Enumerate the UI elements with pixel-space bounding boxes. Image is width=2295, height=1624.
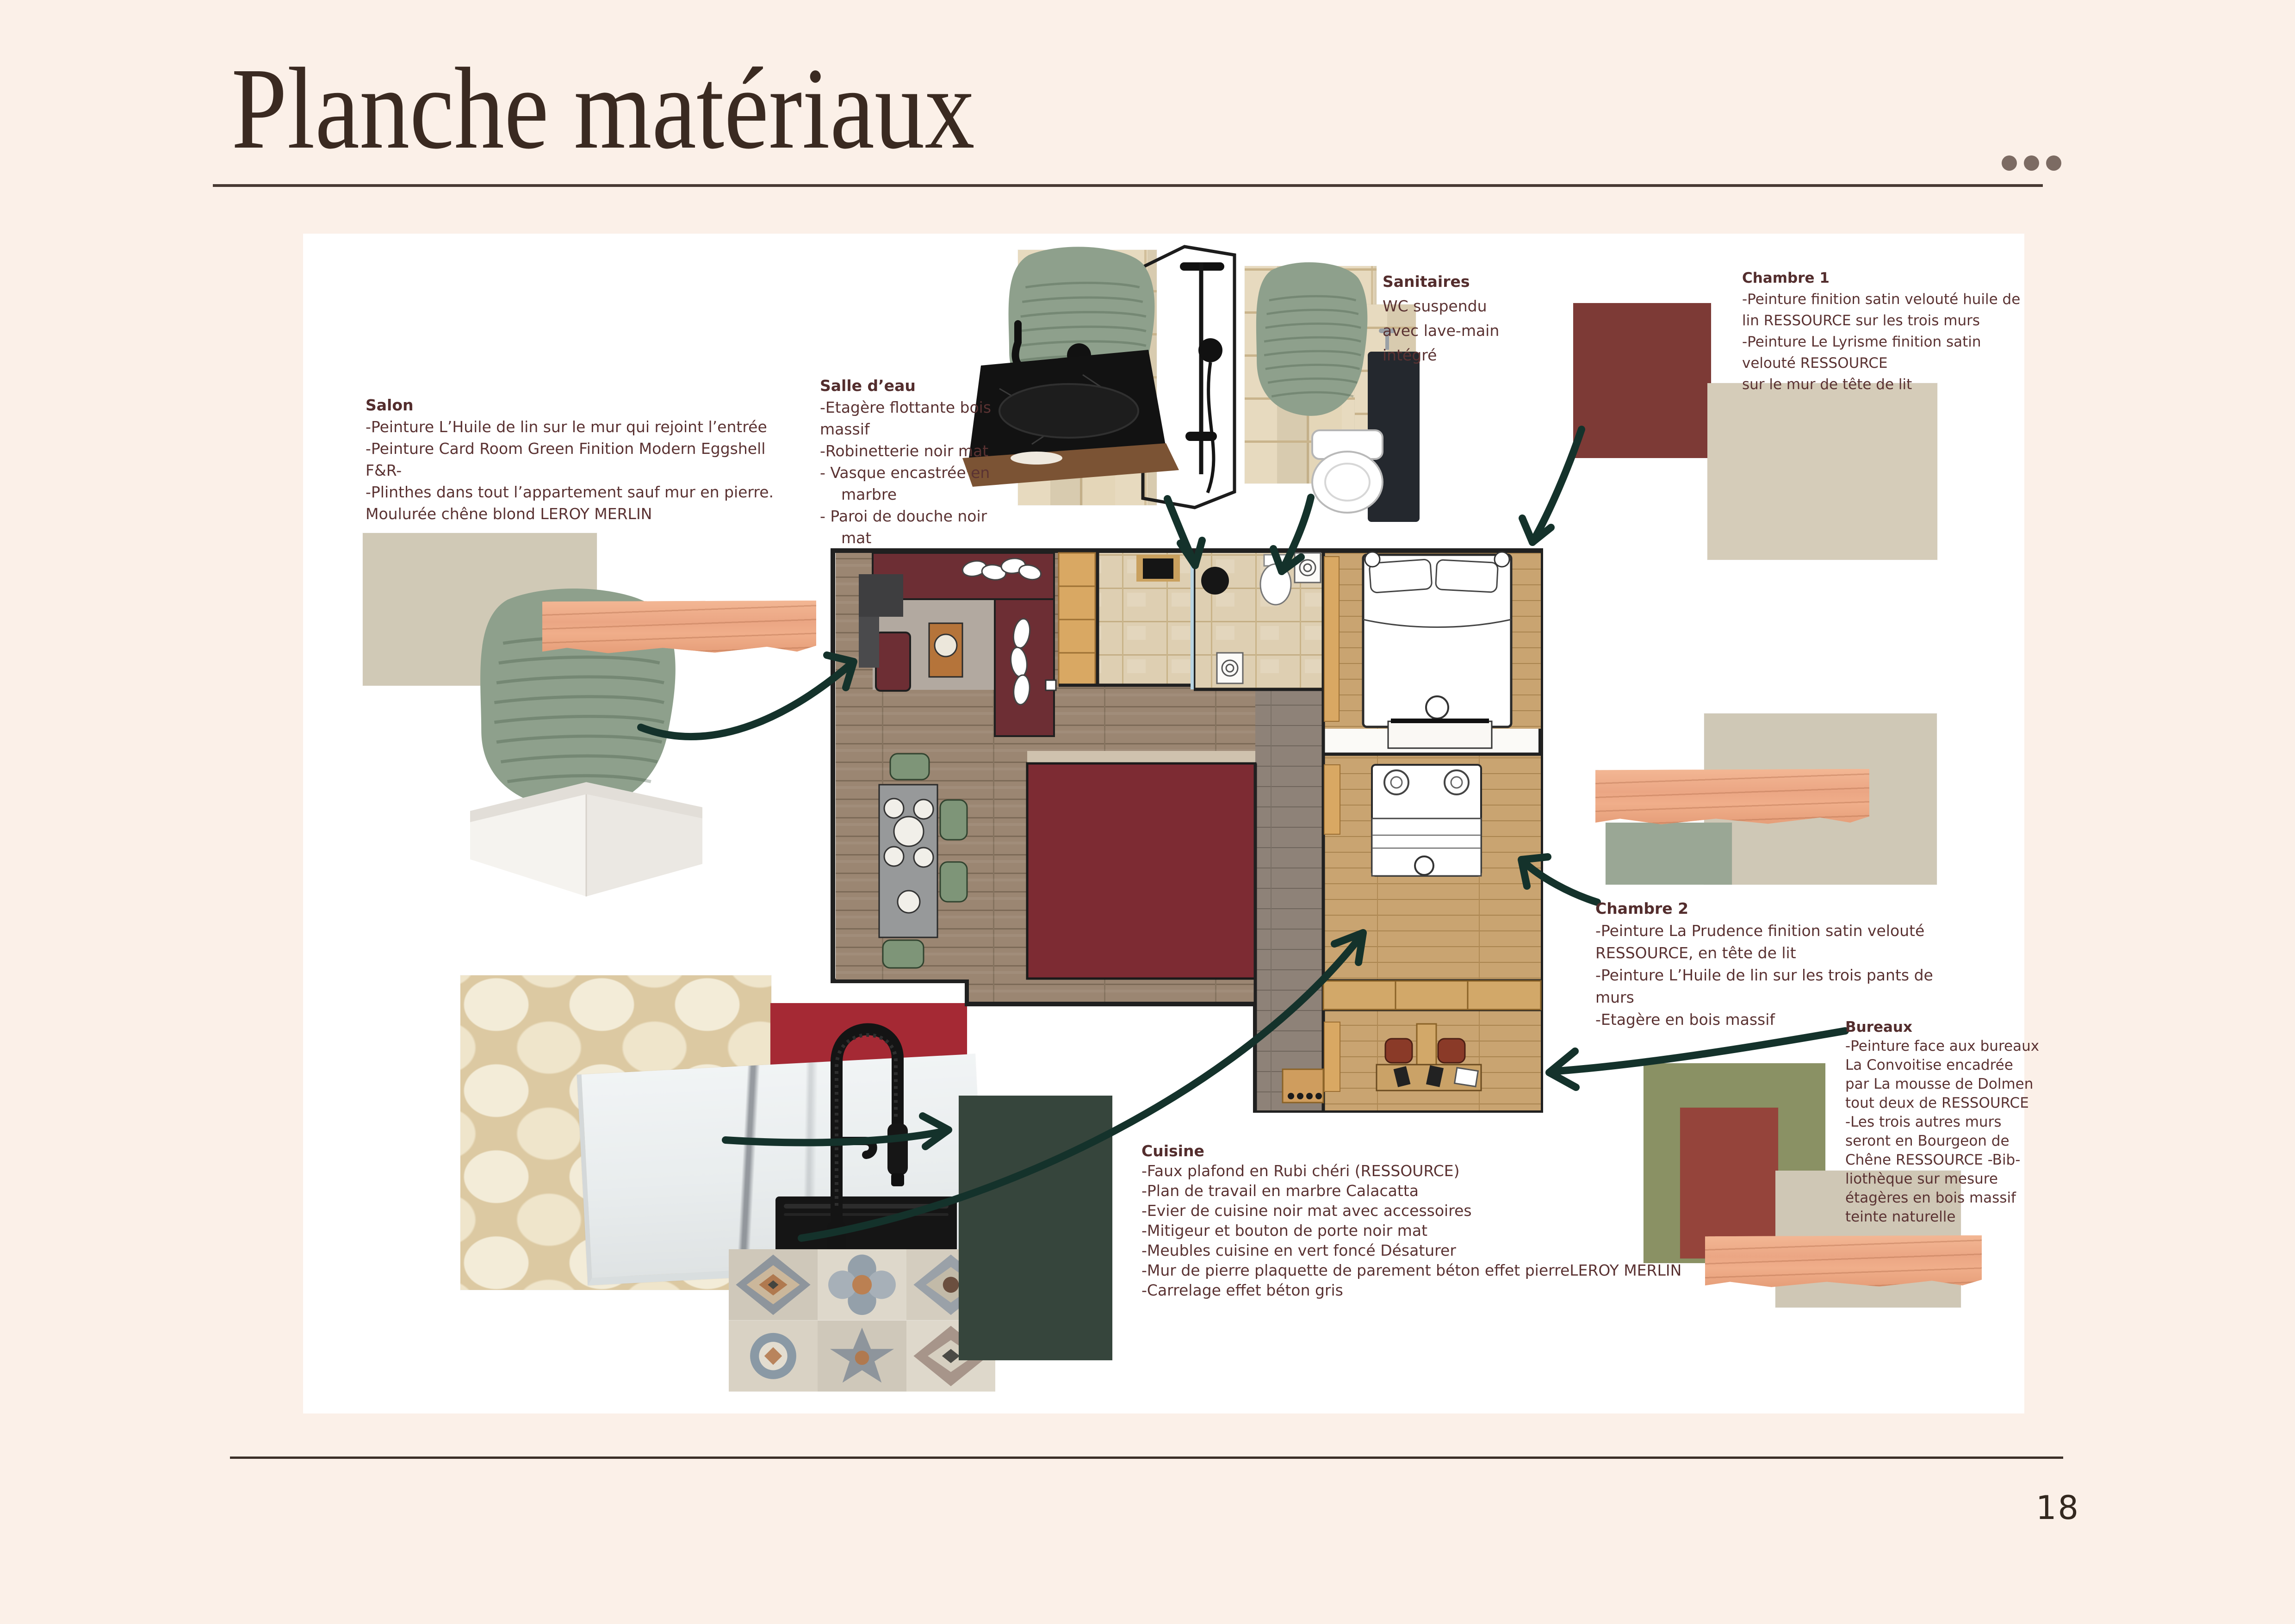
kitchen-red-floor — [1027, 763, 1255, 979]
note-line: -Etagère flottante bois — [820, 397, 991, 418]
beige-paint-swatch-chambre1 — [1707, 383, 1937, 560]
note-salle-eau: Salle d’eau -Etagère flottante bois mass… — [820, 375, 991, 549]
tv-bench — [1388, 721, 1492, 748]
note-line: -Evier de cuisine noir mat avec accessoi… — [1141, 1201, 1681, 1221]
note-cuisine: Cuisine -Faux plafond en Rubi chéri (RES… — [1141, 1141, 1681, 1300]
note-line: WC suspendu — [1383, 294, 1499, 318]
page-title: Planche matériaux — [231, 45, 975, 171]
armchair — [876, 632, 910, 691]
note-line: -Carrelage effet béton gris — [1141, 1280, 1681, 1300]
note-line: seront en Bourgeon de — [1845, 1132, 2039, 1151]
note-line: -Plan de travail en marbre Calacatta — [1141, 1181, 1681, 1201]
oak-plank-sample-salon — [542, 601, 816, 654]
note-line: La Convoitise encadrée — [1845, 1056, 2039, 1075]
cement-tile-sample — [729, 1249, 995, 1389]
note-chambre2-heading: Chambre 2 — [1595, 898, 1933, 920]
note-line: marbre — [820, 483, 991, 505]
oak-plank-sample-chambre2 — [1595, 769, 1869, 825]
shower-drain — [1201, 567, 1229, 595]
note-line: Chêne RESSOURCE -Bib- — [1845, 1151, 2039, 1170]
note-salon-heading: Salon — [366, 394, 774, 416]
note-line: murs — [1595, 986, 1933, 1009]
note-line: -Plinthes dans tout l’appartement sauf m… — [366, 481, 774, 503]
tile-star-motif — [818, 1320, 906, 1392]
maroon-paint-swatch-chambre1 — [1573, 303, 1711, 458]
washbasin — [1295, 553, 1321, 583]
kitchen-tile-border — [1027, 751, 1255, 763]
note-chambre2: Chambre 2 -Peinture La Prudence finition… — [1595, 898, 1933, 1031]
note-line: sur le mur de tête de lit — [1742, 374, 2020, 395]
sage-paint-swatch-chambre2 — [1606, 823, 1732, 885]
note-sanitaires: Sanitaires WC suspendu avec lave-main in… — [1383, 269, 1499, 367]
note-line: teinte naturelle — [1845, 1208, 2039, 1227]
note-line: -Peinture Le Lyrisme finition satin — [1742, 331, 2020, 353]
oak-plank-sample-bureaux — [1705, 1235, 1982, 1288]
note-line: -Mur de pierre plaquette de parement bét… — [1141, 1260, 1681, 1280]
slide-planche-materiaux: { "page": { "title": "Planche matériaux"… — [0, 0, 2295, 1624]
note-line: -Peinture L’Huile de lin sur les trois p… — [1595, 964, 1933, 986]
note-line: velouté RESSOURCE — [1742, 353, 2020, 374]
note-sanitaires-heading: Sanitaires — [1383, 269, 1499, 294]
note-line: étagères en bois massif — [1845, 1189, 2039, 1208]
note-line: -Les trois autres murs — [1845, 1113, 2039, 1132]
shelf-strip — [1323, 981, 1541, 1010]
tile-quatrefoil-motif — [729, 1320, 818, 1392]
note-line: -Mitigeur et bouton de porte noir mat — [1141, 1221, 1681, 1240]
page-number: 18 — [2036, 1489, 2080, 1527]
bed-chambre2 — [1372, 765, 1481, 876]
note-line: mat — [820, 527, 991, 549]
note-line: -Faux plafond en Rubi chéri (RESSOURCE) — [1141, 1161, 1681, 1181]
note-line: massif — [820, 418, 991, 440]
note-line: -Robinetterie noir mat — [820, 440, 991, 462]
footer-rule — [230, 1457, 2063, 1459]
note-line: -Peinture finition satin velouté huile d… — [1742, 289, 2020, 310]
glass-partition — [1191, 553, 1194, 689]
ellipsis-icon — [2002, 155, 2061, 171]
tile-quatrefoil-motif — [818, 1249, 906, 1320]
note-line: -Peinture L’Huile de lin sur le mur qui … — [366, 416, 774, 438]
toilet — [1260, 564, 1291, 605]
note-chambre1-heading: Chambre 1 — [1742, 267, 2020, 289]
note-line: -Peinture face aux bureaux — [1845, 1037, 2039, 1056]
tile-diamond-motif — [729, 1249, 818, 1320]
header-rule — [213, 184, 2043, 187]
note-salle-eau-heading: Salle d’eau — [820, 375, 991, 397]
note-bureaux-heading: Bureaux — [1845, 1018, 2039, 1037]
dark-green-cabinet-swatch — [959, 1096, 1112, 1360]
note-line: liothèque sur mesure — [1845, 1170, 2039, 1189]
note-line: par La mousse de Dolmen — [1845, 1075, 2039, 1094]
note-chambre1: Chambre 1 -Peinture finition satin velou… — [1742, 267, 2020, 395]
note-line: -Meubles cuisine en vert foncé Désaturer — [1141, 1240, 1681, 1260]
note-line: -Peinture Card Room Green Finition Moder… — [366, 438, 774, 459]
note-cuisine-heading: Cuisine — [1141, 1141, 1681, 1161]
note-line: lin RESSOURCE sur les trois murs — [1742, 310, 2020, 331]
black-marble-basin — [962, 305, 1185, 495]
white-plinth-moulding — [470, 776, 702, 898]
media-console — [859, 574, 903, 617]
note-line: F&R- — [366, 459, 774, 481]
note-line: RESSOURCE, en tête de lit — [1595, 942, 1933, 964]
note-line: avec lave-main — [1383, 318, 1499, 343]
note-line: - Paroi de douche noir — [820, 505, 991, 527]
note-salon: Salon -Peinture L’Huile de lin sur le mu… — [366, 394, 774, 525]
note-line: intégré — [1383, 343, 1499, 367]
note-line: Moulurée chêne blond LEROY MERLIN — [366, 503, 774, 525]
bed-chambre1 — [1363, 552, 1511, 727]
note-line: - Vasque encastrée en — [820, 462, 991, 483]
note-line: -Peinture La Prudence finition satin vel… — [1595, 920, 1933, 942]
note-bureaux: Bureaux -Peinture face aux bureaux La Co… — [1845, 1018, 2039, 1227]
floor-plan — [813, 522, 1555, 1124]
brick-paint-swatch-bureaux — [1680, 1108, 1778, 1258]
note-line: tout deux de RESSOURCE — [1845, 1094, 2039, 1113]
washbasin — [1217, 653, 1243, 683]
